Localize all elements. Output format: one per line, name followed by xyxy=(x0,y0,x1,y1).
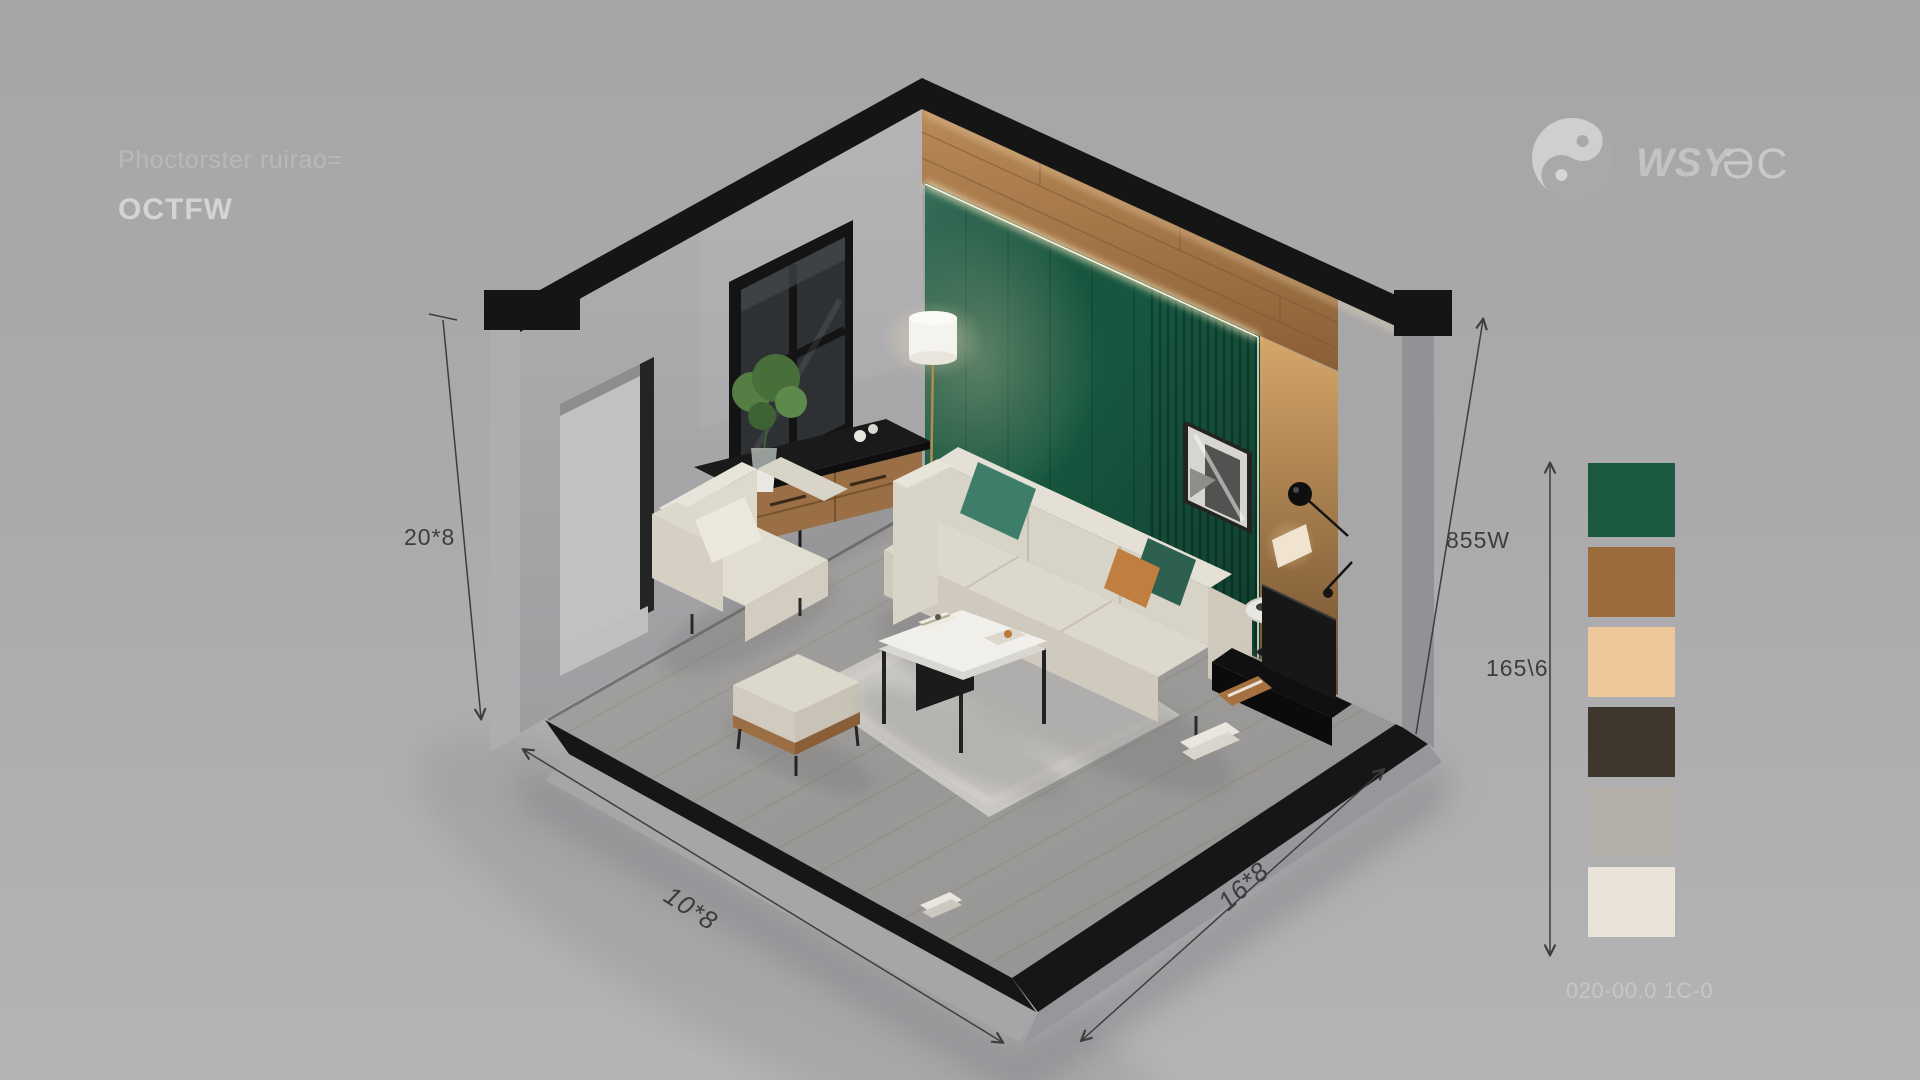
palette-swatch-ivory xyxy=(1588,867,1675,937)
header-subtitle: Phoctorster ruirao= xyxy=(118,146,343,175)
doorway xyxy=(560,357,654,676)
wall-sconce xyxy=(1264,519,1316,571)
palette-swatch-forest-green xyxy=(1588,463,1675,537)
palette-swatch-dark-walnut xyxy=(1588,707,1675,777)
dim-label-right-width: 855W xyxy=(1446,527,1510,553)
wall-left-outer-face xyxy=(490,303,520,752)
palette-caption: 020-00.0 1C-0 xyxy=(1566,978,1713,1003)
logo-text-secondary: ƏC xyxy=(1722,140,1789,188)
palette-swatch-saddle-brown xyxy=(1588,547,1675,617)
palette-swatch-sand-beige xyxy=(1588,627,1675,697)
isometric-room-poster: 20*8 10*8 16*8 855W 165\6 WSY ƏC 020-00.… xyxy=(0,0,1920,1080)
logo-swirl-icon xyxy=(1517,103,1627,213)
logo-text-primary: WSY xyxy=(1636,141,1732,185)
palette-swatch-warm-gray xyxy=(1588,787,1675,857)
dim-label-right-height: 165\6 xyxy=(1486,655,1549,681)
dim-line-left-wall xyxy=(443,320,481,718)
header: Phoctorster ruirao= OCTFW xyxy=(118,146,343,227)
logo: WSY ƏC xyxy=(1517,103,1790,213)
wall-right-outer-face xyxy=(1402,298,1434,748)
header-title: OCTFW xyxy=(118,193,343,227)
color-palette: 020-00.0 1C-0 xyxy=(1566,463,1713,1003)
dim-label-left: 20*8 xyxy=(404,524,455,550)
wall-right-gray-return xyxy=(1338,295,1402,727)
